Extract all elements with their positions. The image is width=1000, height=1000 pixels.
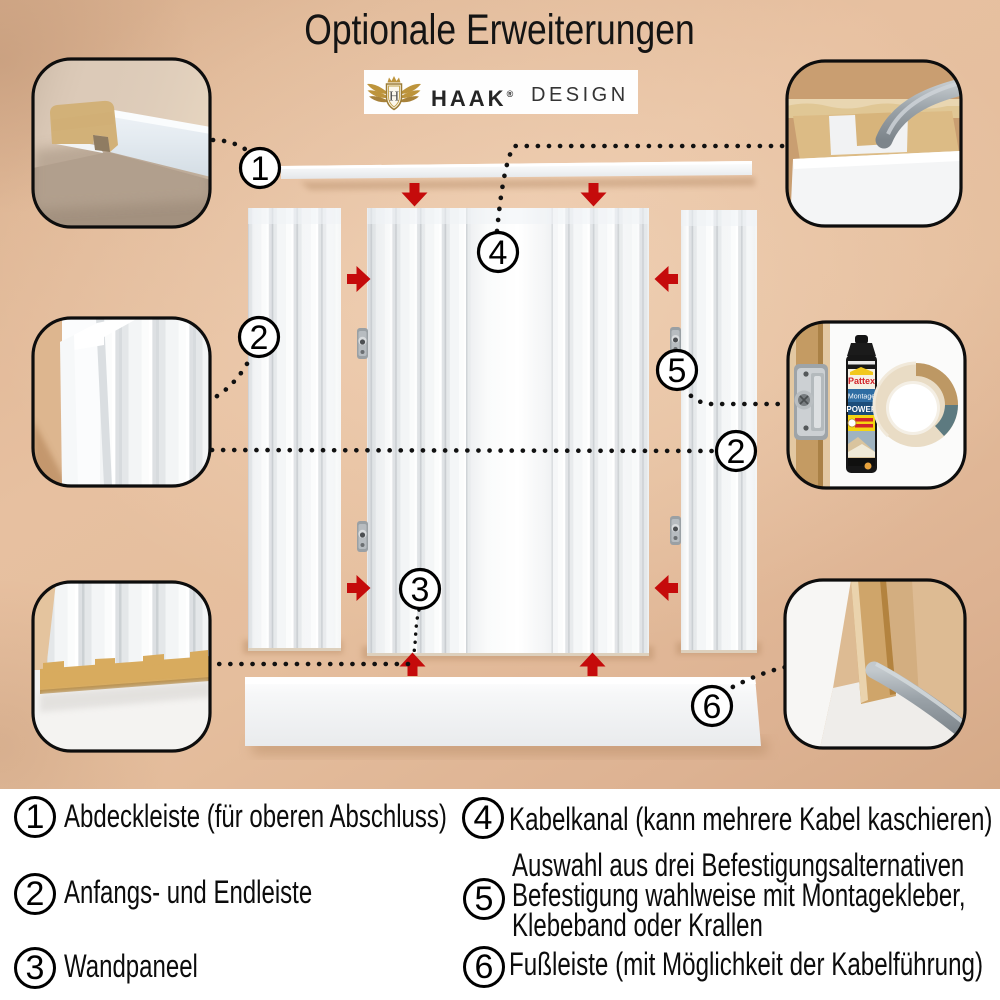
- svg-text:Pattex: Pattex: [848, 376, 875, 386]
- svg-text:5: 5: [668, 352, 687, 390]
- svg-text:1: 1: [251, 150, 270, 188]
- svg-text:POWER: POWER: [846, 405, 876, 414]
- svg-text:6: 6: [703, 688, 722, 726]
- svg-text:2: 2: [250, 319, 269, 357]
- svg-text:2: 2: [727, 433, 746, 471]
- svg-text:4: 4: [489, 234, 508, 272]
- svg-text:Montage: Montage: [848, 394, 875, 401]
- svg-text:3: 3: [411, 571, 430, 609]
